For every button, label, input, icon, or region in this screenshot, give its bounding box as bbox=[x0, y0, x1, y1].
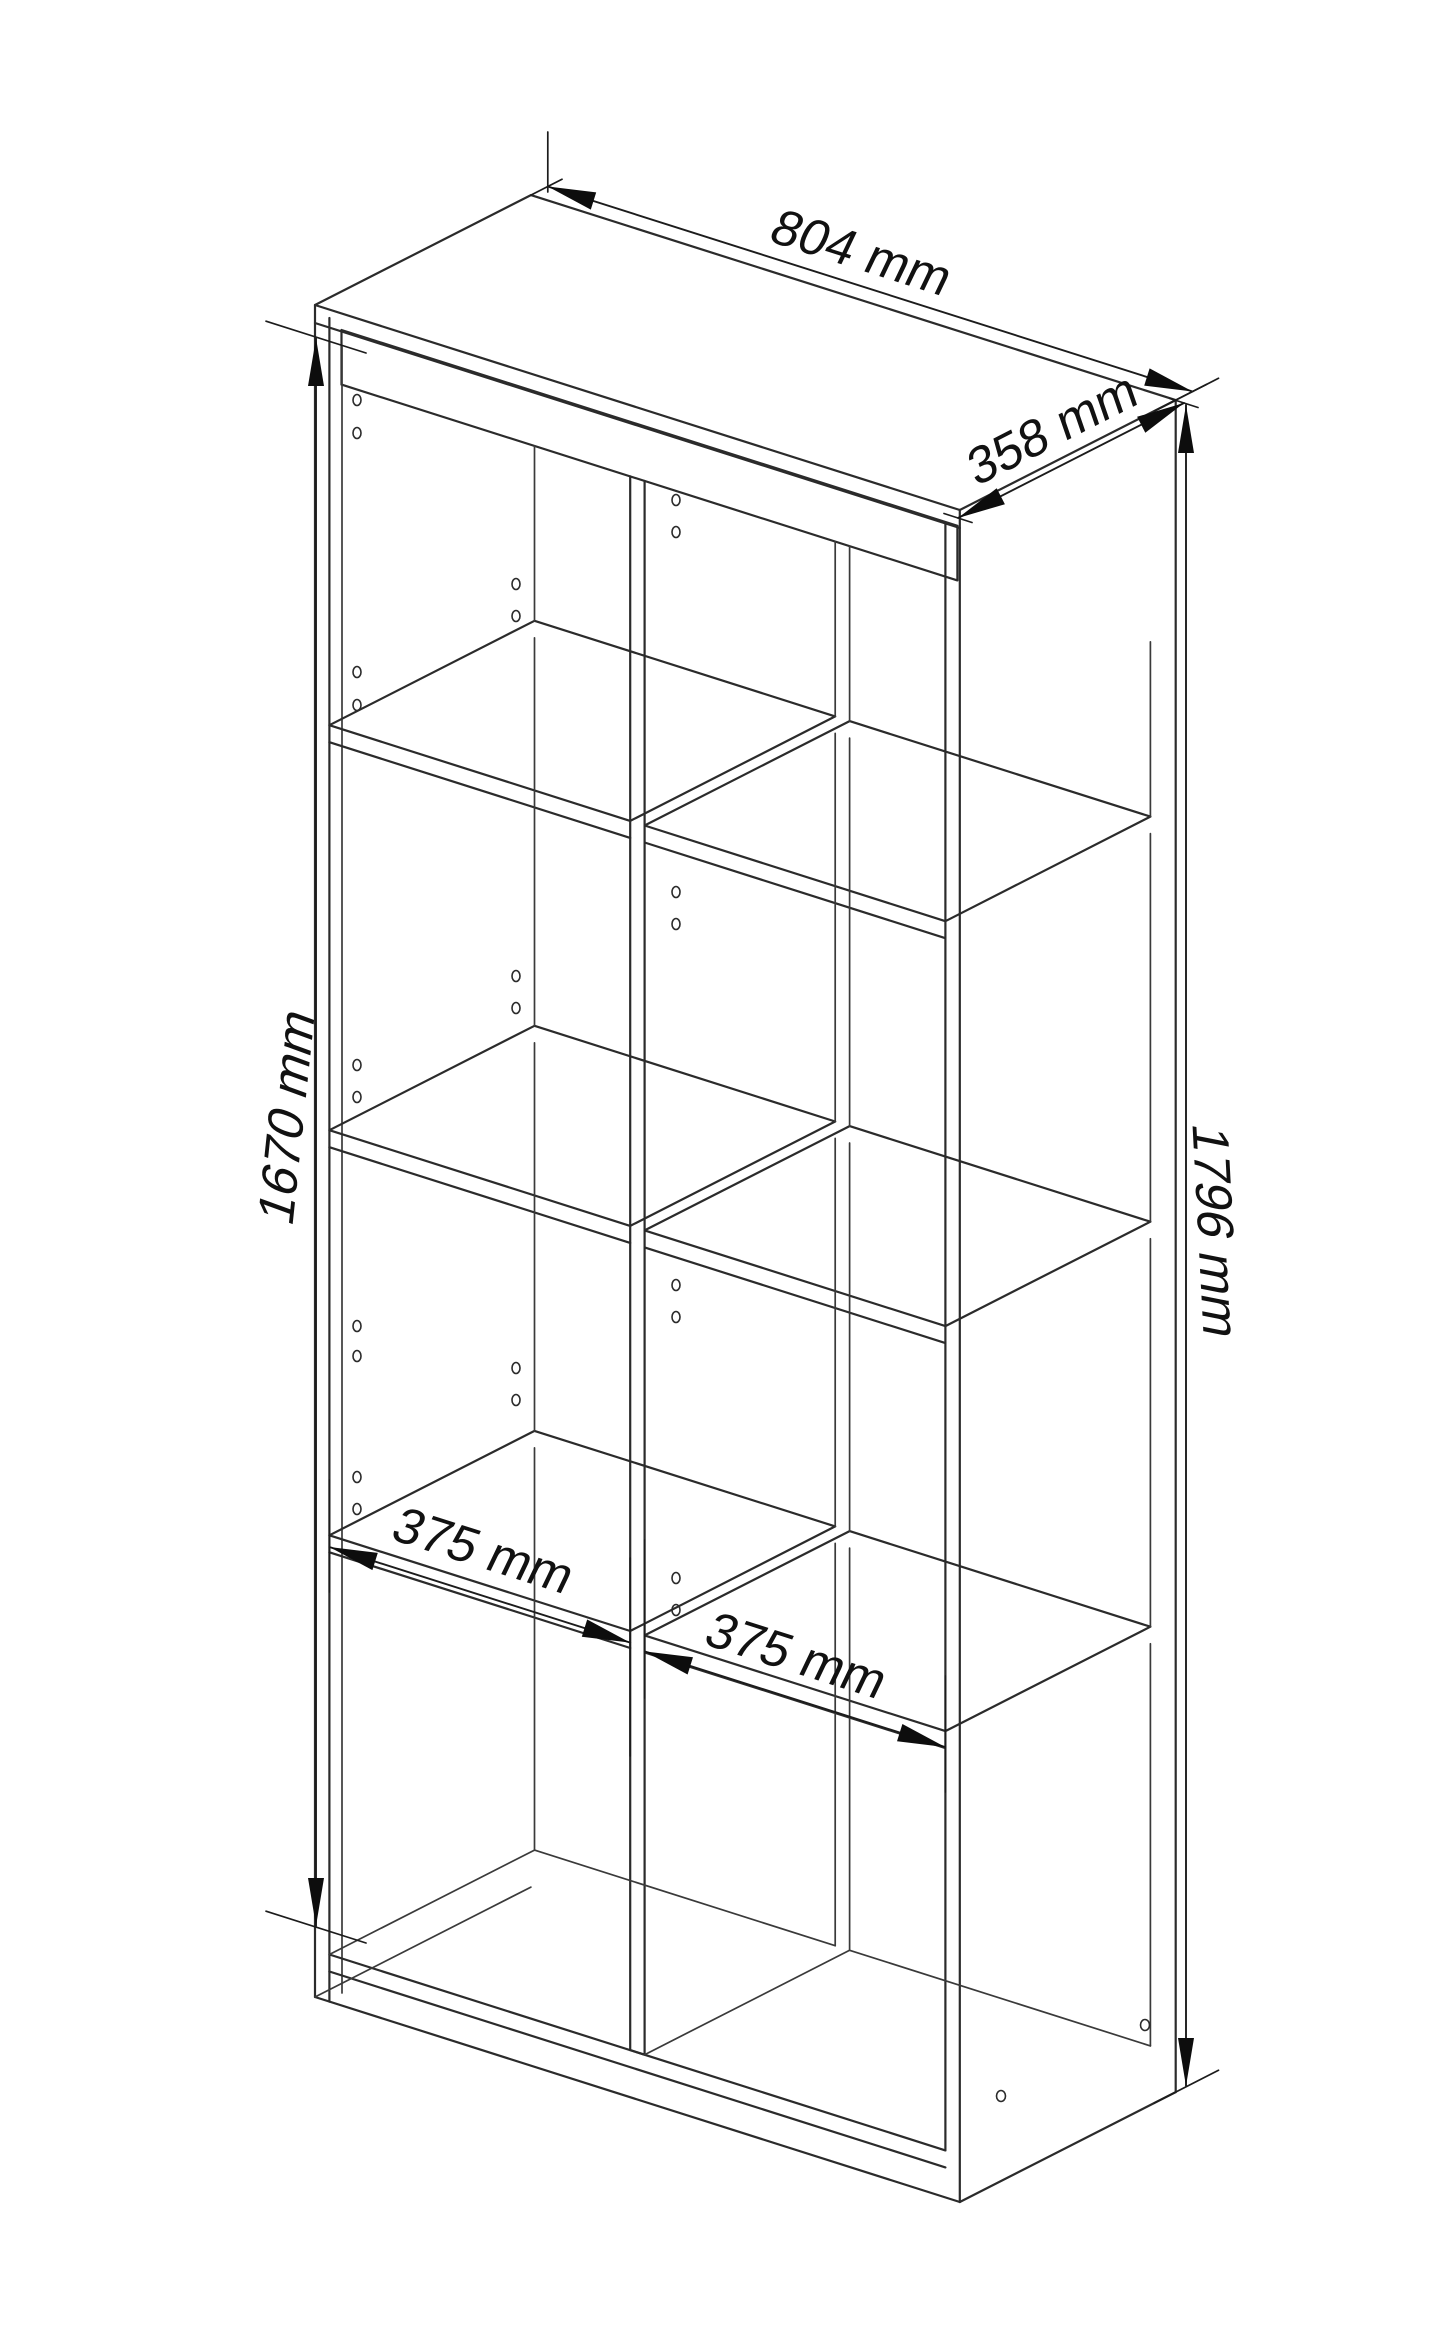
shelf-right-1 bbox=[645, 721, 1151, 938]
top-panel-front-band bbox=[315, 323, 960, 528]
dimension-label-compartment-left: 375 mm bbox=[384, 1497, 584, 1604]
dimension-label-width: 804 mm bbox=[762, 199, 962, 306]
bottom-panel-front-edge bbox=[329, 1955, 945, 2151]
bookcase-dimension-diagram: 804 mm 358 mm 1670 mm 1796 mm bbox=[0, 0, 1445, 2335]
arrowhead bbox=[1178, 405, 1194, 453]
right-bottom-depth-edge bbox=[960, 2092, 1176, 2202]
shelves-right-column bbox=[645, 721, 1151, 1748]
shelf-left-1 bbox=[329, 621, 835, 838]
dimension-label-right-height: 1796 mm bbox=[1181, 1120, 1250, 1343]
plinth-top-edge bbox=[329, 1972, 945, 2168]
shelf-right-2 bbox=[645, 1126, 1151, 1343]
bookcase-outline bbox=[315, 195, 1176, 2202]
center-divider bbox=[630, 476, 644, 2054]
shelves-left-column bbox=[329, 621, 835, 1648]
dimension-label-compartment-right: 375 mm bbox=[697, 1602, 897, 1709]
peg-holes bbox=[353, 395, 1150, 2102]
floor-front-edge bbox=[315, 1997, 960, 2202]
arrowhead bbox=[548, 187, 596, 210]
left-bottom-depth-edge bbox=[315, 1887, 531, 1997]
arrowhead bbox=[329, 1547, 377, 1570]
dimension-overall-width: 804 mm bbox=[531, 132, 1207, 400]
bottom-surface-right bbox=[645, 1950, 1151, 2054]
dimension-label-depth: 358 mm bbox=[961, 360, 1144, 498]
shelf-left-2 bbox=[329, 1026, 835, 1243]
arrowhead bbox=[308, 338, 324, 386]
dimension-right-compartment: 375 mm bbox=[645, 1540, 946, 1792]
dimension-left-height: 1670 mm bbox=[246, 321, 366, 1943]
technical-drawing-page: 804 mm 358 mm 1670 mm 1796 mm bbox=[0, 0, 1445, 2335]
arrowhead bbox=[308, 1878, 324, 1926]
arrowhead bbox=[1144, 368, 1192, 391]
dimension-left-compartment: 375 mm bbox=[329, 1480, 630, 1756]
dimension-right-height: 1796 mm bbox=[1154, 378, 1250, 2103]
dimension-label-left-height: 1670 mm bbox=[247, 1000, 325, 1231]
arrowhead bbox=[645, 1651, 693, 1674]
interior-back-corner-lines bbox=[535, 446, 1151, 2046]
bottom-surface-left bbox=[329, 1850, 835, 1954]
arrowhead bbox=[1178, 2038, 1194, 2086]
arrowhead bbox=[897, 1724, 945, 1747]
top-rail bbox=[342, 330, 958, 580]
